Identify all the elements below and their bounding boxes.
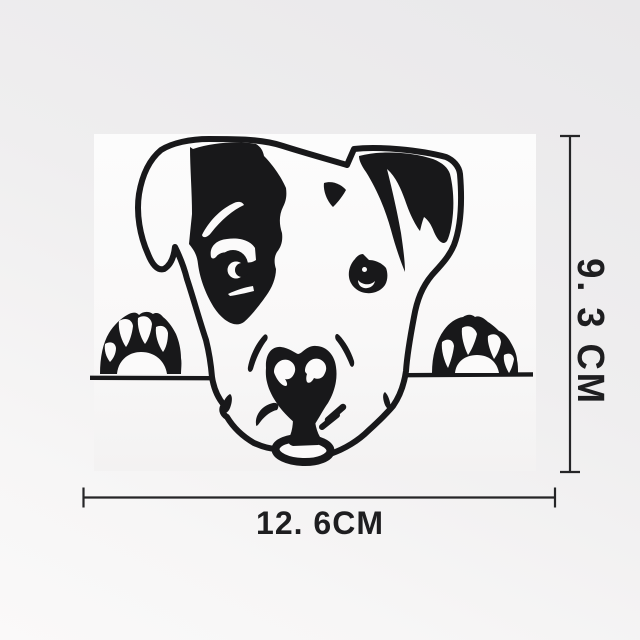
svg-text:12. 6CM: 12. 6CM xyxy=(256,505,384,541)
svg-text:9. 3 CM: 9. 3 CM xyxy=(570,258,613,406)
